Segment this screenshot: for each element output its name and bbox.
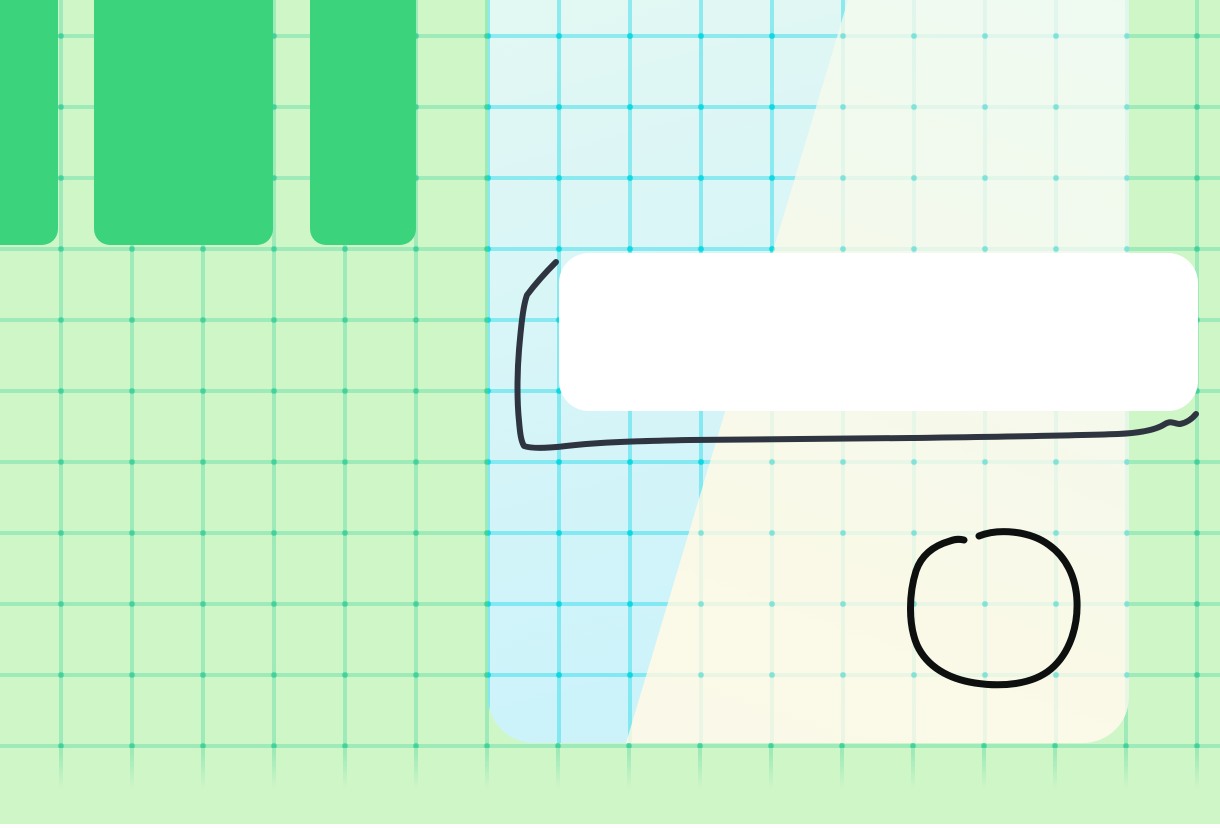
background-grid-fade <box>0 748 1220 788</box>
canvas-surface[interactable] <box>0 0 1220 828</box>
white-card[interactable] <box>559 253 1198 411</box>
bottom-white-strip <box>0 824 1220 828</box>
green-pillar-2[interactable] <box>94 0 273 245</box>
green-pillar-1[interactable] <box>0 0 58 245</box>
green-pillar-3[interactable] <box>310 0 416 245</box>
